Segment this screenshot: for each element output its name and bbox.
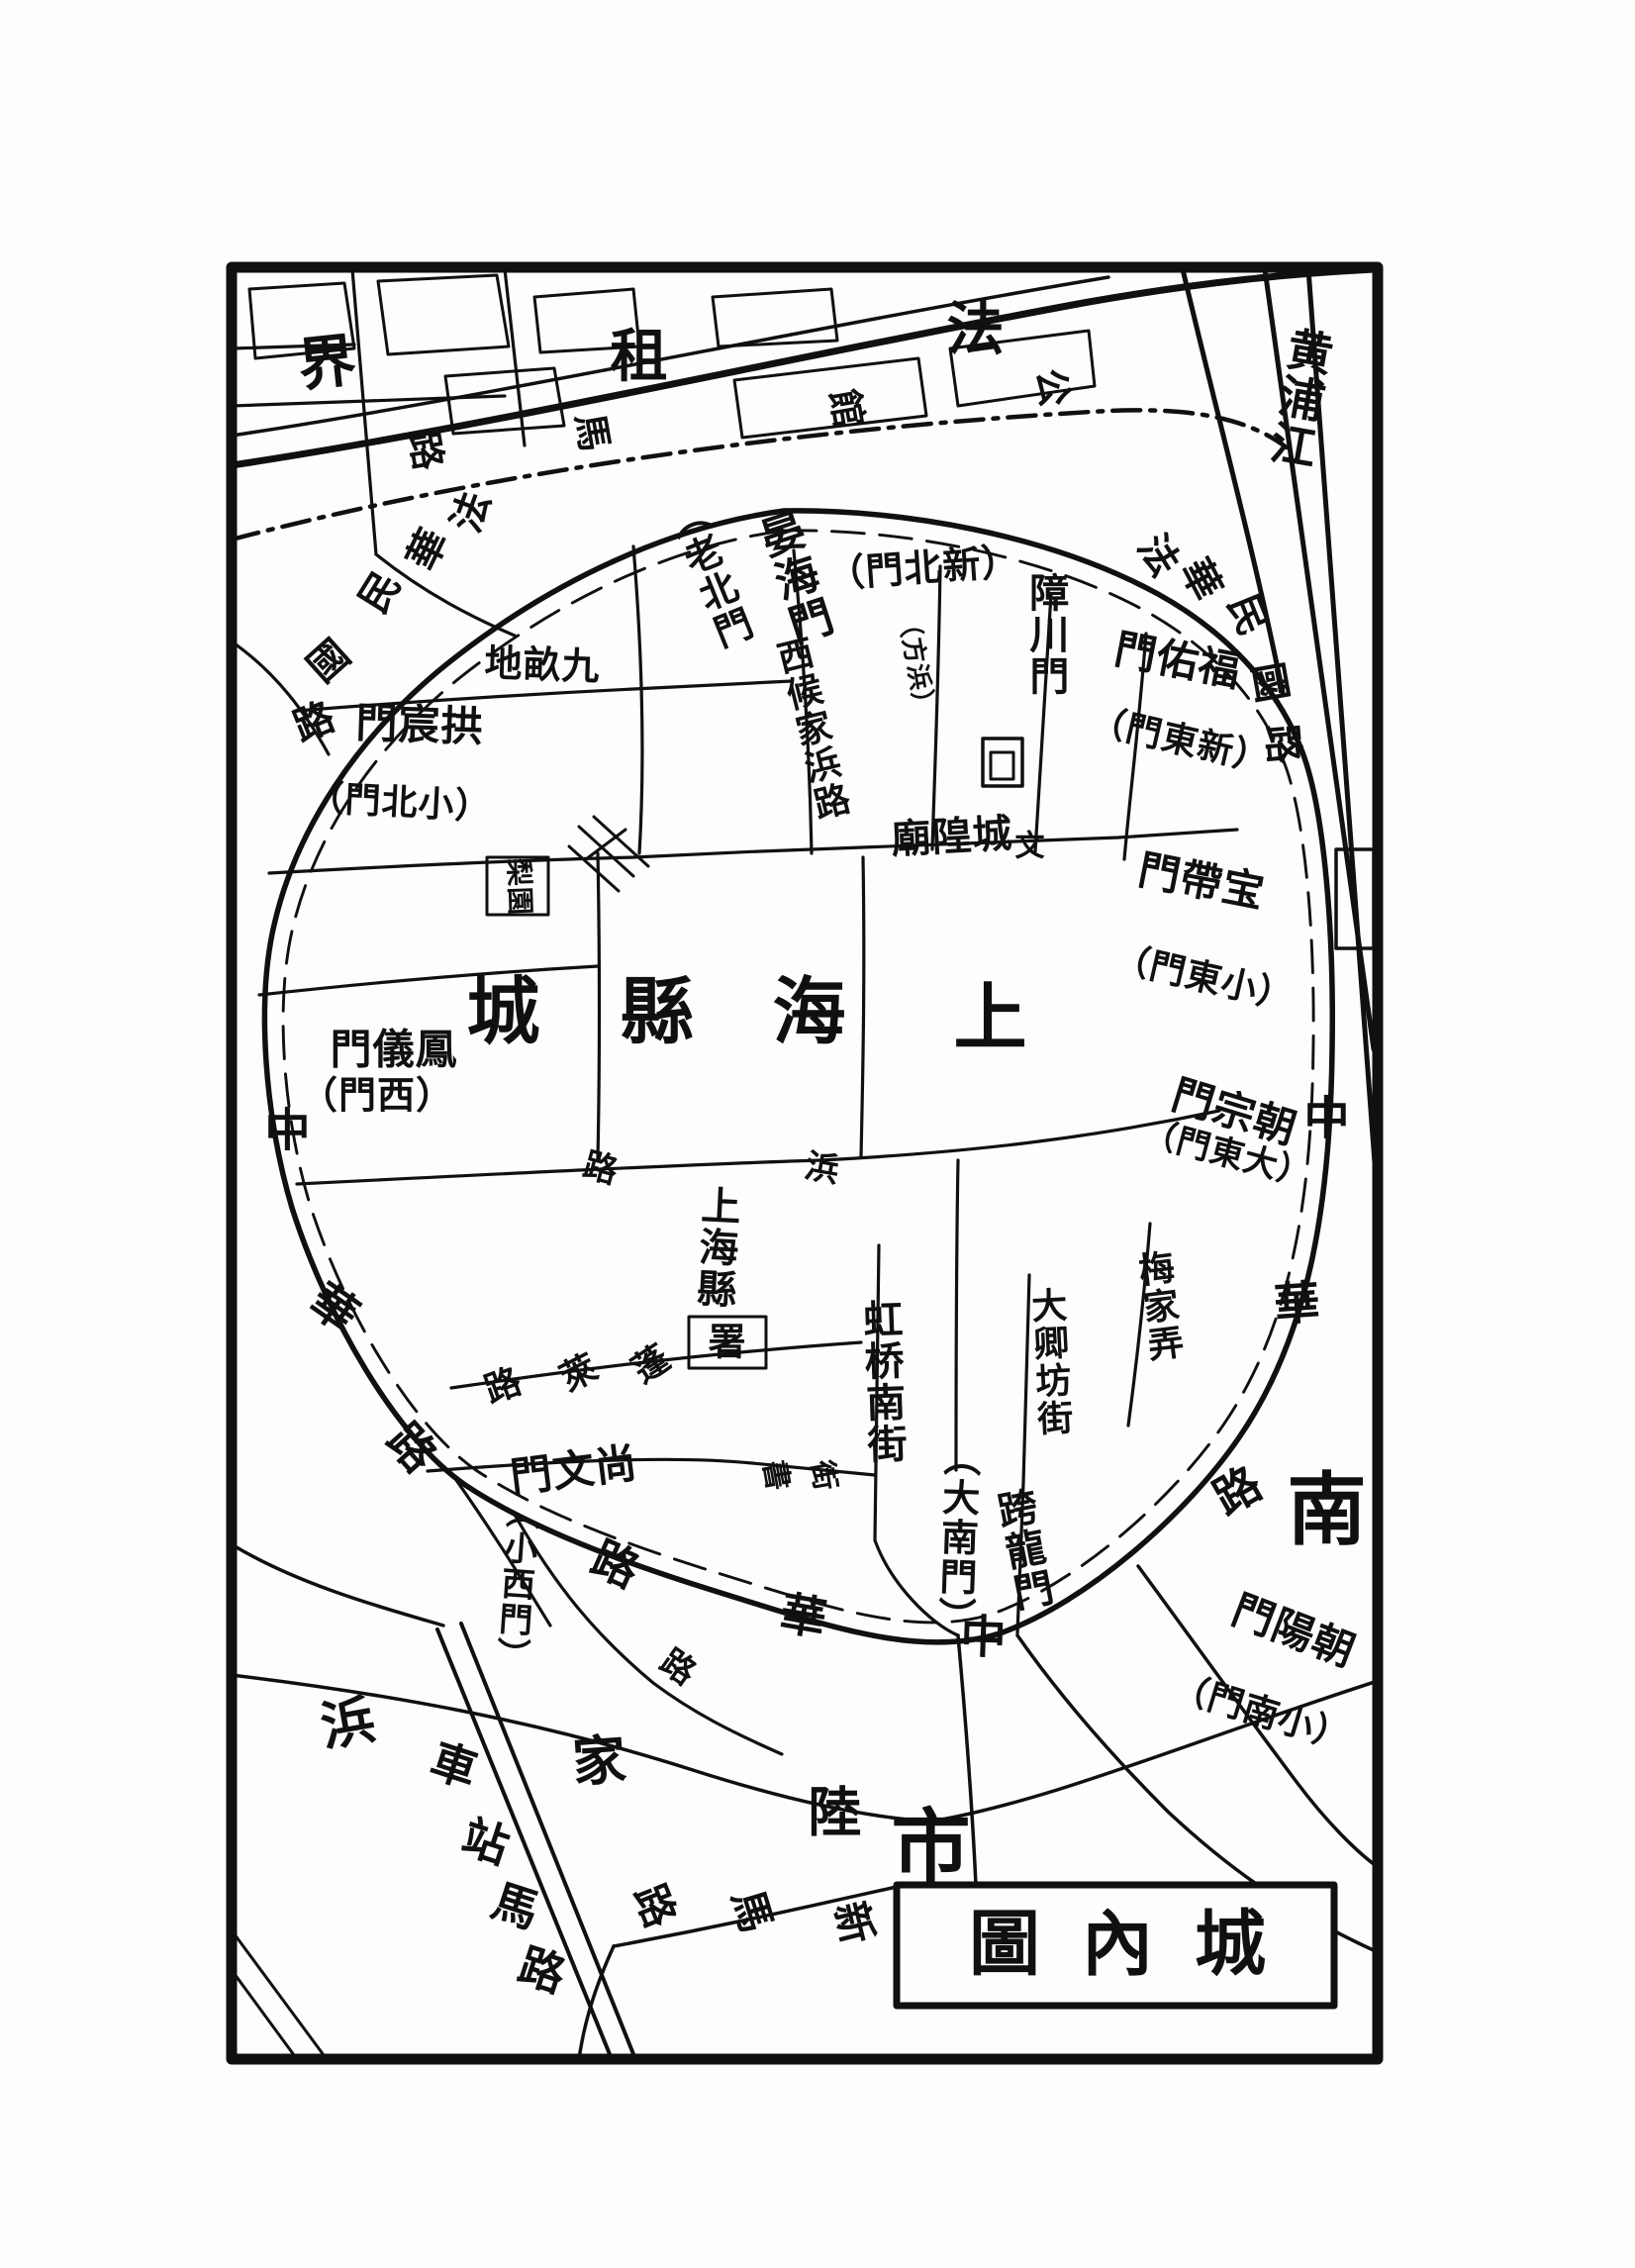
label-lujiabang-jia: 家 [571,1732,629,1791]
label-zhonghua-w-zhong: 中 [265,1108,312,1154]
label-county-yamen-shu: 署 [708,1324,746,1362]
label-daqingfang-jie: 大卿坊街 [1026,1286,1071,1438]
label-zhonghua-w-lu: 路 [379,1416,444,1481]
label-gate-gongchen: 門宸拱 [355,702,484,748]
label-zhonghua-s-lu: 路 [585,1534,646,1596]
label-gate-chaoyang: 門陽朝 [1226,1589,1361,1674]
label-lujiabang-lu: 陸 [809,1785,863,1839]
label-street-bang-mid: 浜 [803,1149,842,1189]
label-xihoujiabang-rd: 西候家浜路 [769,634,850,825]
label-city-name-shang: 上 [954,981,1028,1055]
label-fangbang: （方浜） [894,610,938,720]
label-gate-zhangchuan: 障川門 [1025,572,1066,697]
city-map: 界租法黄浦江路馬館公法華民國路法華民國路晏海門（老北門（門北新）障川門門佑福（門… [0,0,1635,2268]
label-zhonghua-s-hua: 華 [777,1590,830,1643]
label-gate-baodai: 門帶宝 [1135,849,1269,916]
label-xinmalu-xin: 新 [827,1898,879,1949]
label-gate-xindong: （門東新） [1087,703,1274,779]
label-gate-xiaodong: （門東小） [1110,940,1298,1017]
label-gongguan-rd-lu: 路 [404,429,448,473]
label-gate-xinbei: （門北新） [825,542,1020,594]
label-map-title: 圖內城 [969,1908,1307,1980]
label-gongguan-rd-gong: 公 [1030,365,1075,410]
label-gate-kualong: 跨龍門 [990,1485,1053,1615]
label-penglai-rd-lai: 萊 [555,1349,605,1399]
label-minguo-rd-nw-lu: 路 [288,696,340,748]
label-penglai-rd-lu: 路 [480,1363,527,1410]
label-street-lu-mid: 路 [580,1148,623,1191]
label-gate-laobei: （老北門 [660,494,755,655]
label-huangpu-river: 黄浦江 [1263,324,1333,472]
label-concession-zu: 租 [610,327,668,385]
label-gongguan-rd-ma: 馬 [570,410,615,454]
label-gate-xiaobei: （門北小） [308,781,493,827]
label-wen-mark: 文 [1015,833,1046,863]
label-zhonghua-w-hua: 華 [302,1276,366,1340]
label-liyuan: 梨園 [504,858,534,917]
label-hongqiao-nanjie: 虹桥南街 [858,1298,905,1465]
label-shujie-jie: 街 [805,1458,840,1494]
label-gate-fengyi: 門儀鳳 [330,1030,457,1072]
label-city-name-cheng: 城 [467,975,541,1049]
label-minguo-rd-nw-fa: 法 [446,486,498,538]
label-minguo-rd-nw-hua: 華 [402,523,456,577]
label-minguo-rd-nw-min: 民 [353,564,409,620]
label-concession-fa: 法 [946,300,1005,358]
label-chezhan-rd-zhan: 站 [456,1813,515,1871]
label-gate-fuyou: 門佑福 [1111,629,1245,695]
label-shujie-shu: 書 [757,1458,793,1494]
label-zhonghua-e-zhong: 中 [1304,1096,1351,1142]
label-zhonghua-e-lu: 路 [1206,1459,1270,1523]
label-gate-xi: （門西） [300,1077,454,1116]
label-gate-danan: （大南門） [933,1437,979,1636]
label-minguo-rd-ne-guo: 國 [1245,659,1292,706]
label-nanshi-nan: 南 [1288,1470,1368,1551]
label-gate-xiaonan: （門南小） [1168,1669,1354,1757]
label-county-yamen: 上海縣 [691,1184,737,1311]
label-lujiabang-bang: 浜 [317,1692,380,1755]
label-xinmalu-ma: 馬 [724,1885,778,1938]
label-concession-jie: 界 [296,331,360,395]
label-chezhan-rd-che: 車 [425,1736,483,1795]
label-layer: 界租法黄浦江路馬館公法華民國路法華民國路晏海門（老北門（門北新）障川門門佑福（門… [0,0,1635,2268]
label-city-name-hai: 海 [773,975,847,1049]
label-nanshi-shi: 市 [892,1807,972,1888]
label-jiumudi: 地畝九 [484,644,601,687]
label-minguo-rd-ne-min: 民 [1220,589,1273,641]
label-gate-yanhai: 晏海門 [749,507,833,650]
label-xinmalu-lu: 路 [626,1879,682,1934]
label-meijia-long: 梅家弄 [1132,1248,1182,1365]
label-xieqiao-rd-lu: 路 [654,1644,703,1692]
label-gate-shangwen: 門文尚 [508,1442,639,1500]
label-chezhan-rd-lu: 路 [513,1941,571,2000]
label-chenghuang-temple: 廟隍城 [891,814,1014,860]
label-zhonghua-s-zhong: 中 [960,1614,1009,1662]
label-minguo-rd-nw-guo: 國 [301,633,358,690]
label-chezhan-rd-ma: 馬 [486,1877,544,1935]
label-gongguan-rd-guan: 館 [824,386,869,431]
label-gate-xiaoxi: （小西門） [491,1494,537,1674]
label-penglai-rd-peng: 蓬 [626,1340,677,1391]
label-city-name-xian: 縣 [621,975,695,1049]
label-zhonghua-e-hua: 華 [1273,1279,1322,1329]
